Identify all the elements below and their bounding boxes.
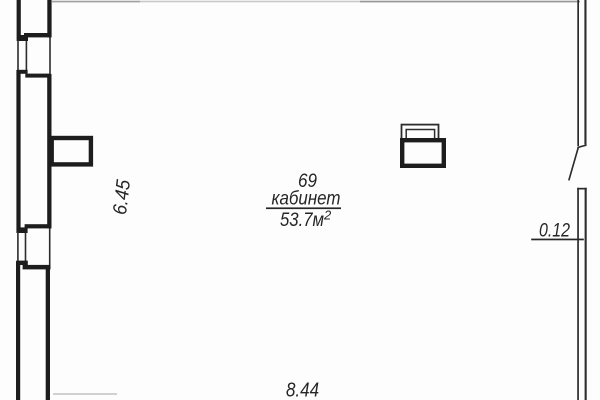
svg-text:53.7м: 53.7м [280,209,324,231]
svg-text:6.45: 6.45 [109,178,135,216]
svg-text:2: 2 [323,208,332,223]
svg-text:0.12: 0.12 [539,220,570,242]
svg-text:кабинет: кабинет [272,188,341,210]
svg-text:8.44: 8.44 [286,379,319,400]
